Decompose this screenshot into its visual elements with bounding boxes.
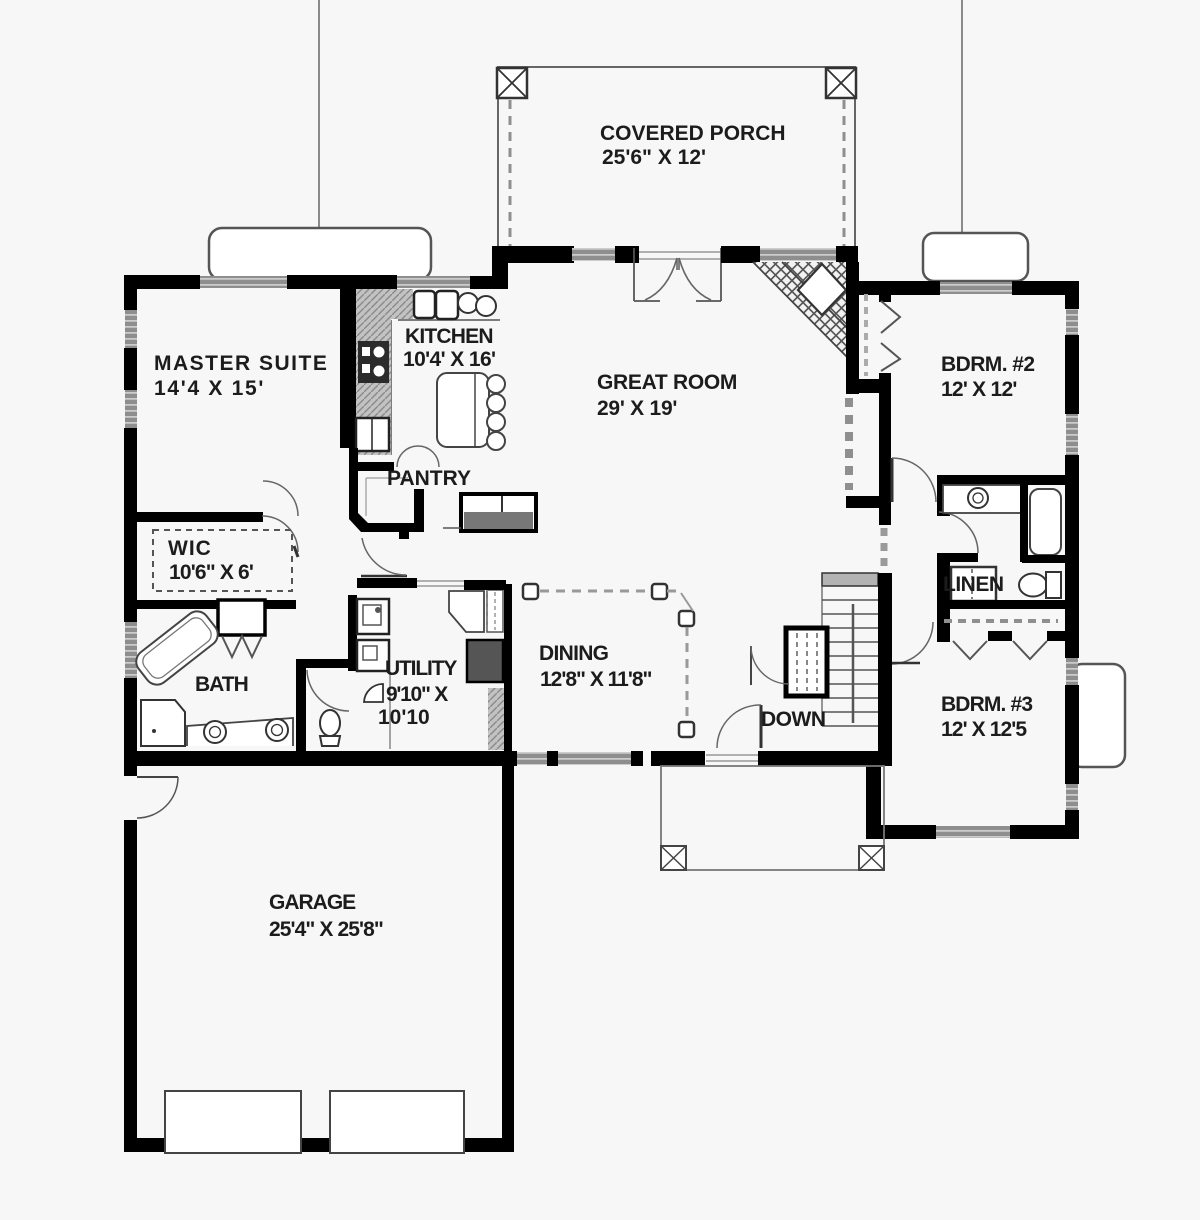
svg-text:12'8" X 11'8": 12'8" X 11'8" xyxy=(540,668,652,691)
svg-text:10'6" X 6': 10'6" X 6' xyxy=(169,561,253,584)
svg-text:MASTER SUITE: MASTER SUITE xyxy=(154,352,328,375)
svg-text:WIC: WIC xyxy=(168,537,212,560)
svg-text:14'4 X 15': 14'4 X 15' xyxy=(154,377,265,400)
svg-text:25'6" X 12': 25'6" X 12' xyxy=(602,146,706,169)
svg-text:10'10: 10'10 xyxy=(378,706,430,729)
svg-text:DOWN: DOWN xyxy=(761,708,826,731)
svg-text:BDRM. #3: BDRM. #3 xyxy=(941,693,1032,716)
svg-text:9'10" X: 9'10" X xyxy=(386,683,448,706)
svg-text:BDRM. #2: BDRM. #2 xyxy=(941,353,1034,376)
svg-text:GARAGE: GARAGE xyxy=(269,891,356,914)
svg-text:DINING: DINING xyxy=(539,642,609,665)
svg-text:12' X 12'5: 12' X 12'5 xyxy=(941,718,1027,741)
svg-text:29' X 19': 29' X 19' xyxy=(597,397,677,420)
svg-text:BATH: BATH xyxy=(195,673,248,696)
svg-text:PANTRY: PANTRY xyxy=(387,467,471,490)
svg-text:LINEN: LINEN xyxy=(943,573,1004,596)
svg-text:12' X 12': 12' X 12' xyxy=(941,378,1017,401)
svg-text:25'4" X 25'8": 25'4" X 25'8" xyxy=(269,918,383,941)
svg-text:GREAT ROOM: GREAT ROOM xyxy=(597,371,737,394)
svg-text:KITCHEN: KITCHEN xyxy=(405,325,493,348)
svg-text:10'4' X 16': 10'4' X 16' xyxy=(403,348,495,371)
svg-text:UTILITY: UTILITY xyxy=(385,657,457,680)
svg-text:COVERED PORCH: COVERED PORCH xyxy=(600,122,786,145)
